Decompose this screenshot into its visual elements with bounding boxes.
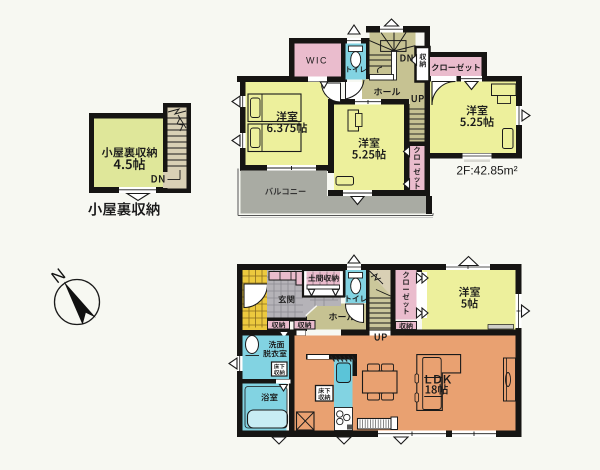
svg-text:2F:42.85m²: 2F:42.85m² (456, 164, 517, 178)
svg-text:WIC: WIC (306, 56, 328, 66)
svg-text:N: N (48, 265, 69, 288)
